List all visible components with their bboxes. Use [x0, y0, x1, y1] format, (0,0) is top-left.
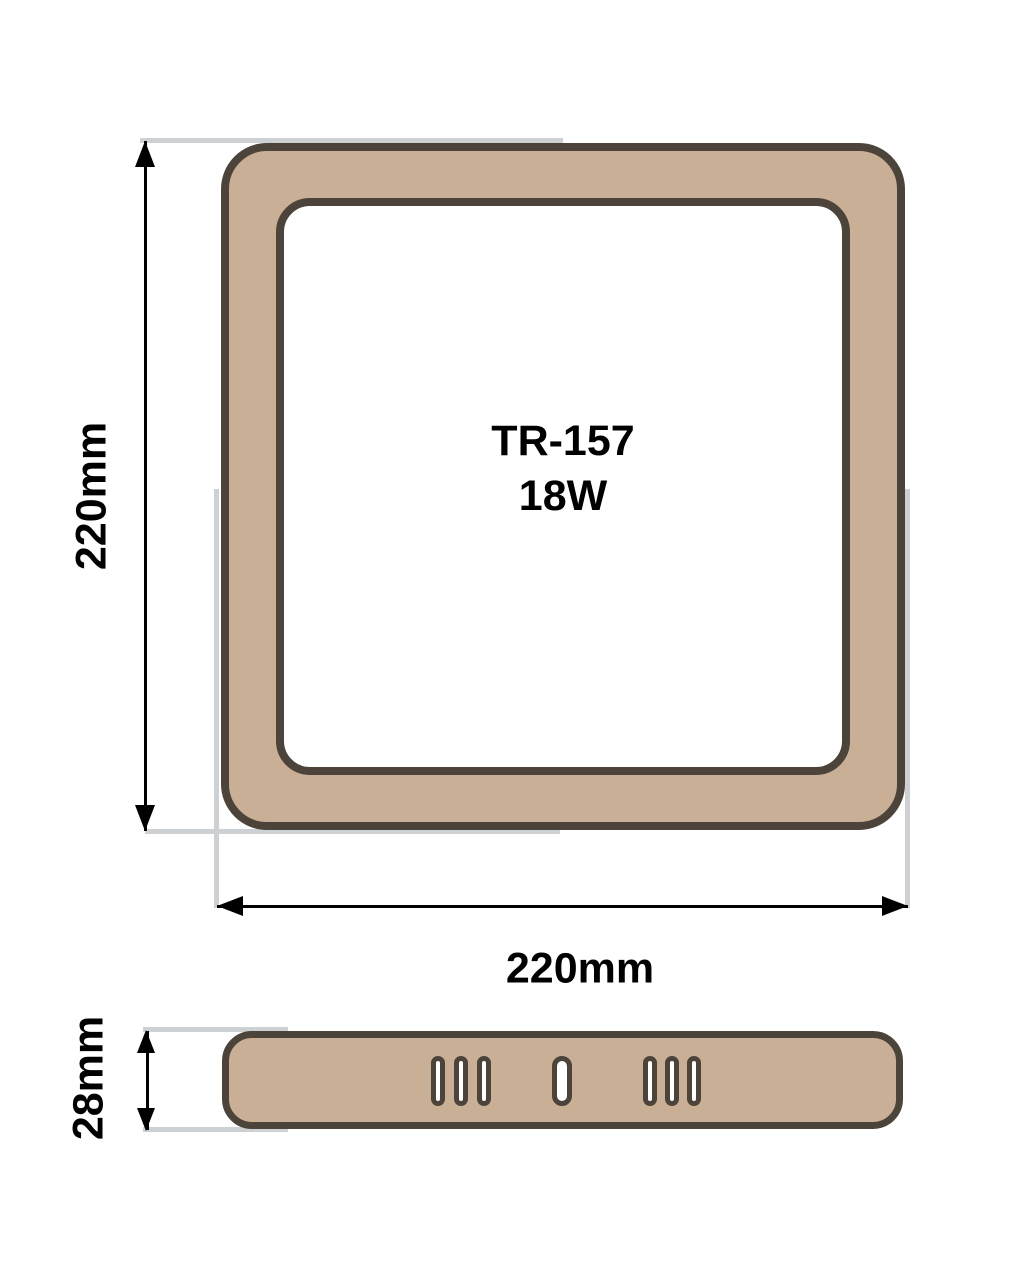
side-view-bar [222, 1031, 903, 1129]
down-arrowhead-icon [137, 1108, 155, 1131]
thickness-dimension-label: 28mm [65, 1016, 114, 1140]
width-extension-line-left [214, 489, 219, 908]
up-arrowhead-icon [137, 1030, 155, 1053]
product-wattage-label: 18W [221, 469, 905, 524]
up-arrowhead-icon [135, 141, 155, 167]
height-dimension-line [144, 141, 147, 831]
down-arrowhead-icon [135, 805, 155, 831]
left-arrowhead-icon [217, 896, 243, 916]
product-model-label: TR-157 [221, 414, 905, 469]
panel-label-block: TR-157 18W [221, 414, 905, 524]
width-dimension-label: 220mm [506, 945, 654, 994]
width-dimension-line [217, 905, 908, 908]
right-arrowhead-icon [882, 896, 908, 916]
width-extension-line-right [905, 489, 910, 908]
height-dimension-label: 220mm [68, 422, 117, 570]
diagram-canvas: TR-157 18W 220mm 220mm 28mm [0, 0, 1024, 1280]
